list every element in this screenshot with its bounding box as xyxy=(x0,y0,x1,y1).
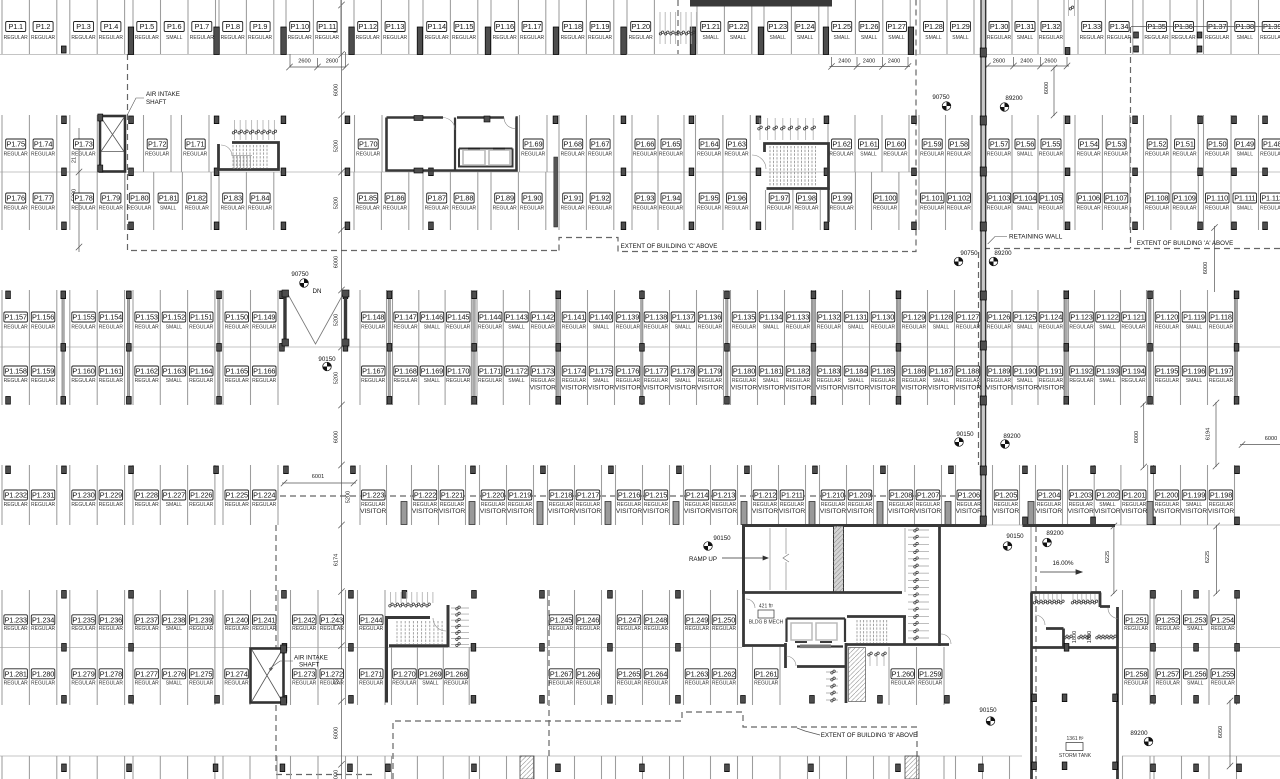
svg-text:89200: 89200 xyxy=(1046,530,1064,537)
svg-text:REGULAR: REGULAR xyxy=(394,325,419,331)
svg-text:REGULAR: REGULAR xyxy=(1121,325,1146,331)
svg-text:REGULAR: REGULAR xyxy=(361,325,386,331)
svg-text:P1.227: P1.227 xyxy=(163,491,185,500)
svg-text:P1.206: P1.206 xyxy=(958,491,980,500)
svg-text:REGULAR: REGULAR xyxy=(520,35,545,41)
svg-text:SMALL: SMALL xyxy=(166,626,183,632)
svg-text:P1.34: P1.34 xyxy=(1110,22,1128,31)
svg-text:P1.175: P1.175 xyxy=(590,367,612,376)
svg-text:SMALL: SMALL xyxy=(166,502,183,508)
svg-text:REGULAR: REGULAR xyxy=(521,152,546,158)
svg-text:P1.245: P1.245 xyxy=(550,615,572,624)
svg-text:VISITOR: VISITOR xyxy=(758,385,784,392)
svg-text:P1.177: P1.177 xyxy=(645,367,667,376)
svg-text:SMALL: SMALL xyxy=(769,35,786,41)
svg-text:P1.249: P1.249 xyxy=(686,615,708,624)
svg-text:P1.22: P1.22 xyxy=(729,22,747,31)
svg-text:P1.235: P1.235 xyxy=(72,615,94,624)
svg-text:REGULAR: REGULAR xyxy=(520,206,545,212)
svg-text:REGULAR: REGULAR xyxy=(145,152,170,158)
svg-text:REGULAR: REGULAR xyxy=(31,35,56,41)
svg-text:P1.94: P1.94 xyxy=(662,194,680,203)
svg-text:P1.104: P1.104 xyxy=(1014,194,1036,203)
svg-text:REGULAR: REGULAR xyxy=(873,206,898,212)
svg-text:REGULAR: REGULAR xyxy=(224,680,249,686)
svg-text:P1.200: P1.200 xyxy=(1156,491,1178,500)
svg-text:2600: 2600 xyxy=(1044,59,1056,65)
svg-text:P1.276: P1.276 xyxy=(163,669,185,678)
svg-text:SMALL: SMALL xyxy=(1017,325,1034,331)
svg-text:P1.237: P1.237 xyxy=(136,615,158,624)
svg-text:REGULAR: REGULAR xyxy=(987,206,1012,212)
svg-text:REGULAR: REGULAR xyxy=(732,325,757,331)
svg-text:P1.30: P1.30 xyxy=(990,22,1008,31)
svg-text:SMALL: SMALL xyxy=(763,378,780,384)
svg-text:SMALL: SMALL xyxy=(1099,325,1116,331)
svg-text:P1.162: P1.162 xyxy=(136,367,158,376)
svg-text:P1.258: P1.258 xyxy=(1125,669,1147,678)
svg-text:SMALL: SMALL xyxy=(925,35,942,41)
svg-text:P1.80: P1.80 xyxy=(130,194,148,203)
svg-text:VISITOR: VISITOR xyxy=(439,508,465,515)
svg-text:P1.246: P1.246 xyxy=(577,615,599,624)
svg-text:AIR INTAKE: AIR INTAKE xyxy=(146,91,180,98)
svg-text:P1.163: P1.163 xyxy=(163,367,185,376)
svg-text:5200: 5200 xyxy=(334,372,340,384)
svg-text:VISITOR: VISITOR xyxy=(575,508,601,515)
svg-text:REGULAR: REGULAR xyxy=(71,35,96,41)
svg-text:REGULAR: REGULAR xyxy=(4,378,29,384)
svg-text:REGULAR: REGULAR xyxy=(947,152,972,158)
svg-text:6174: 6174 xyxy=(334,554,340,566)
svg-text:P1.29: P1.29 xyxy=(951,22,969,31)
svg-text:REGULAR: REGULAR xyxy=(531,378,556,384)
svg-text:VISITOR: VISITOR xyxy=(847,508,873,515)
svg-text:P1.131: P1.131 xyxy=(845,313,867,322)
svg-text:VISITOR: VISITOR xyxy=(816,385,842,392)
svg-text:P1.93: P1.93 xyxy=(636,194,654,203)
svg-text:P1.265: P1.265 xyxy=(618,669,640,678)
svg-text:REGULAR: REGULAR xyxy=(135,378,160,384)
svg-text:P1.11: P1.11 xyxy=(318,22,336,31)
svg-text:VISITOR: VISITOR xyxy=(752,508,778,515)
svg-text:P1.65: P1.65 xyxy=(662,140,680,149)
svg-text:P1.136: P1.136 xyxy=(699,313,721,322)
svg-text:REGULAR: REGULAR xyxy=(616,378,641,384)
svg-text:P1.71: P1.71 xyxy=(186,140,204,149)
svg-text:REGULAR: REGULAR xyxy=(1171,35,1196,41)
svg-text:P1.251: P1.251 xyxy=(1125,615,1147,624)
svg-text:REGULAR: REGULAR xyxy=(31,152,56,158)
svg-text:REGULAR: REGULAR xyxy=(1124,626,1149,632)
svg-text:REGULAR: REGULAR xyxy=(288,35,313,41)
svg-text:P1.127: P1.127 xyxy=(957,313,979,322)
svg-text:P1.19: P1.19 xyxy=(591,22,609,31)
svg-text:REGULAR: REGULAR xyxy=(1205,152,1230,158)
svg-text:REGULAR: REGULAR xyxy=(685,680,710,686)
svg-text:P1.223: P1.223 xyxy=(362,491,384,500)
svg-text:REGULAR: REGULAR xyxy=(561,35,586,41)
svg-text:P1.179: P1.179 xyxy=(699,367,721,376)
svg-text:REGULAR: REGULAR xyxy=(987,35,1012,41)
svg-text:REGULAR: REGULAR xyxy=(4,325,29,331)
svg-text:2600: 2600 xyxy=(298,59,310,65)
svg-text:P1.16: P1.16 xyxy=(496,22,514,31)
svg-text:6000: 6000 xyxy=(1203,262,1209,274)
svg-text:SMALL: SMALL xyxy=(1237,35,1254,41)
svg-text:VISITOR: VISITOR xyxy=(1121,508,1147,515)
svg-text:P1.28: P1.28 xyxy=(924,22,942,31)
svg-text:AIR INTAKE: AIR INTAKE xyxy=(294,655,328,662)
svg-text:REGULAR: REGULAR xyxy=(725,152,750,158)
svg-text:P1.108: P1.108 xyxy=(1146,194,1168,203)
svg-text:P1.204: P1.204 xyxy=(1038,491,1060,500)
svg-text:P1.263: P1.263 xyxy=(686,669,708,678)
svg-text:P1.24: P1.24 xyxy=(796,22,814,31)
svg-text:P1.59: P1.59 xyxy=(923,140,941,149)
svg-text:2400: 2400 xyxy=(1020,59,1032,65)
svg-text:P1.171: P1.171 xyxy=(479,367,501,376)
svg-text:P1.242: P1.242 xyxy=(293,615,315,624)
svg-text:P1.277: P1.277 xyxy=(136,669,158,678)
svg-text:REGULAR: REGULAR xyxy=(1107,35,1132,41)
svg-text:P1.272: P1.272 xyxy=(321,669,343,678)
svg-text:REGULAR: REGULAR xyxy=(252,378,277,384)
svg-text:SMALL: SMALL xyxy=(952,35,969,41)
svg-text:REGULAR: REGULAR xyxy=(359,626,384,632)
svg-text:P1.75: P1.75 xyxy=(7,140,25,149)
svg-text:P1.78: P1.78 xyxy=(74,194,92,203)
svg-text:89200: 89200 xyxy=(1003,433,1021,440)
svg-text:P1.6: P1.6 xyxy=(167,22,182,31)
svg-text:EXTENT OF BUILDING 'C' ABOVE: EXTENT OF BUILDING 'C' ABOVE xyxy=(621,243,718,250)
svg-text:P1.275: P1.275 xyxy=(190,669,212,678)
svg-text:P1.32: P1.32 xyxy=(1042,22,1060,31)
svg-text:REGULAR: REGULAR xyxy=(71,152,96,158)
svg-text:P1.208: P1.208 xyxy=(890,491,912,500)
svg-text:P1.247: P1.247 xyxy=(618,615,640,624)
svg-text:P1.160: P1.160 xyxy=(72,367,94,376)
svg-text:VISITOR: VISITOR xyxy=(956,508,982,515)
svg-text:2400: 2400 xyxy=(838,59,850,65)
svg-text:6225: 6225 xyxy=(1105,551,1111,563)
svg-text:REGULAR: REGULAR xyxy=(1077,206,1102,212)
svg-text:REGULAR: REGULAR xyxy=(4,152,29,158)
svg-text:REGULAR: REGULAR xyxy=(185,206,210,212)
svg-text:REGULAR: REGULAR xyxy=(732,378,757,384)
svg-text:P1.158: P1.158 xyxy=(5,367,27,376)
svg-text:90150: 90150 xyxy=(956,431,974,438)
svg-text:REGULAR: REGULAR xyxy=(292,626,317,632)
svg-text:REGULAR: REGULAR xyxy=(697,206,722,212)
svg-text:P1.202: P1.202 xyxy=(1096,491,1118,500)
svg-text:P1.240: P1.240 xyxy=(226,615,248,624)
svg-text:REGULAR: REGULAR xyxy=(644,626,669,632)
svg-text:REGULAR: REGULAR xyxy=(712,680,737,686)
svg-text:P1.279: P1.279 xyxy=(72,669,94,678)
svg-text:P1.15: P1.15 xyxy=(455,22,473,31)
svg-text:REGULAR: REGULAR xyxy=(135,502,160,508)
svg-text:P1.83: P1.83 xyxy=(224,194,242,203)
svg-text:P1.180: P1.180 xyxy=(733,367,755,376)
svg-text:21: 21 xyxy=(72,157,78,163)
svg-text:P1.188: P1.188 xyxy=(957,367,979,376)
svg-text:P1.225: P1.225 xyxy=(226,491,248,500)
svg-text:REGULAR: REGULAR xyxy=(549,626,574,632)
svg-text:SMALL: SMALL xyxy=(888,35,905,41)
svg-text:REGULAR: REGULAR xyxy=(31,502,56,508)
svg-text:SMALL: SMALL xyxy=(1017,206,1034,212)
svg-text:REGULAR: REGULAR xyxy=(617,680,642,686)
svg-text:P1.52: P1.52 xyxy=(1148,140,1166,149)
svg-text:VISITOR: VISITOR xyxy=(1012,385,1038,392)
svg-text:P1.100: P1.100 xyxy=(874,194,896,203)
svg-text:P1.280: P1.280 xyxy=(32,669,54,678)
svg-text:P1.159: P1.159 xyxy=(32,367,54,376)
svg-text:P1.99: P1.99 xyxy=(833,194,851,203)
svg-text:REGULAR: REGULAR xyxy=(189,325,214,331)
svg-text:REGULAR: REGULAR xyxy=(588,35,613,41)
svg-text:6000: 6000 xyxy=(1265,436,1277,442)
svg-text:VISITOR: VISITOR xyxy=(530,385,556,392)
svg-text:REGULAR: REGULAR xyxy=(478,378,503,384)
svg-text:P1.86: P1.86 xyxy=(386,194,404,203)
svg-text:P1.198: P1.198 xyxy=(1210,491,1232,500)
svg-text:P1.109: P1.109 xyxy=(1173,194,1195,203)
svg-text:P1.222: P1.222 xyxy=(414,491,436,500)
svg-text:P1.269: P1.269 xyxy=(419,669,441,678)
svg-text:P1.224: P1.224 xyxy=(253,491,275,500)
svg-text:REGULAR: REGULAR xyxy=(183,152,208,158)
svg-text:DN: DN xyxy=(313,288,322,295)
svg-text:P1.262: P1.262 xyxy=(713,669,735,678)
svg-text:P1.210: P1.210 xyxy=(822,491,844,500)
svg-text:REGULAR: REGULAR xyxy=(1205,206,1230,212)
svg-text:SMALL: SMALL xyxy=(797,35,814,41)
svg-text:P1.261: P1.261 xyxy=(755,669,777,678)
svg-text:REGULAR: REGULAR xyxy=(252,502,277,508)
svg-text:P1.153: P1.153 xyxy=(136,313,158,322)
svg-text:SMALL: SMALL xyxy=(1186,378,1203,384)
svg-text:REGULAR: REGULAR xyxy=(1121,378,1146,384)
svg-text:REGULAR: REGULAR xyxy=(697,152,722,158)
svg-text:P1.203: P1.203 xyxy=(1070,491,1092,500)
svg-text:VISITOR: VISITOR xyxy=(684,508,710,515)
svg-text:REGULAR: REGULAR xyxy=(383,206,408,212)
svg-text:REGULAR: REGULAR xyxy=(252,626,277,632)
svg-text:6001: 6001 xyxy=(312,474,324,480)
svg-text:P1.77: P1.77 xyxy=(34,194,52,203)
svg-text:REGULAR: REGULAR xyxy=(189,626,214,632)
svg-text:REGULAR: REGULAR xyxy=(31,378,56,384)
svg-text:P1.218: P1.218 xyxy=(550,491,572,500)
svg-text:P1.18: P1.18 xyxy=(564,22,582,31)
svg-text:VISITOR: VISITOR xyxy=(870,385,896,392)
svg-text:REGULAR: REGULAR xyxy=(4,680,29,686)
svg-text:P1.233: P1.233 xyxy=(5,615,27,624)
svg-text:P1.174: P1.174 xyxy=(563,367,585,376)
svg-text:REGULAR: REGULAR xyxy=(1173,152,1198,158)
svg-text:P1.267: P1.267 xyxy=(550,669,572,678)
svg-text:BLDG B MECH: BLDG B MECH xyxy=(749,620,784,626)
svg-text:REGULAR: REGULAR xyxy=(1039,152,1064,158)
svg-text:P1.56: P1.56 xyxy=(1016,140,1034,149)
svg-text:P1.281: P1.281 xyxy=(5,669,27,678)
svg-text:P1.215: P1.215 xyxy=(645,491,667,500)
svg-text:P1.168: P1.168 xyxy=(394,367,416,376)
svg-text:P1.214: P1.214 xyxy=(686,491,708,500)
svg-text:REGULAR: REGULAR xyxy=(31,680,56,686)
svg-text:P1.186: P1.186 xyxy=(903,367,925,376)
svg-text:SMALL: SMALL xyxy=(166,35,183,41)
svg-text:REGULAR: REGULAR xyxy=(698,325,723,331)
svg-text:REGULAR: REGULAR xyxy=(1077,152,1102,158)
svg-text:REGULAR: REGULAR xyxy=(221,35,246,41)
svg-text:P1.182: P1.182 xyxy=(787,367,809,376)
svg-text:REGULAR: REGULAR xyxy=(1039,35,1064,41)
svg-text:REGULAR: REGULAR xyxy=(4,626,29,632)
svg-text:P1.172: P1.172 xyxy=(505,367,527,376)
svg-text:REGULAR: REGULAR xyxy=(871,325,896,331)
svg-text:P1.268: P1.268 xyxy=(445,669,467,678)
svg-text:5000: 5000 xyxy=(334,770,340,779)
svg-text:REGULAR: REGULAR xyxy=(71,325,96,331)
svg-text:REGULAR: REGULAR xyxy=(1260,35,1280,41)
svg-text:VISITOR: VISITOR xyxy=(1068,508,1094,515)
svg-text:SMALL: SMALL xyxy=(1017,152,1034,158)
svg-text:P1.73: P1.73 xyxy=(74,140,92,149)
svg-text:P1.273: P1.273 xyxy=(293,669,315,678)
svg-text:REGULAR: REGULAR xyxy=(444,680,469,686)
svg-text:P1.88: P1.88 xyxy=(455,194,473,203)
svg-text:6000: 6000 xyxy=(334,727,340,739)
svg-text:REGULAR: REGULAR xyxy=(1039,378,1064,384)
svg-text:REGULAR: REGULAR xyxy=(315,35,340,41)
svg-text:P1.187: P1.187 xyxy=(930,367,952,376)
svg-text:P1.62: P1.62 xyxy=(832,140,850,149)
svg-text:REGULAR: REGULAR xyxy=(1145,152,1170,158)
svg-text:P1.98: P1.98 xyxy=(797,194,815,203)
svg-text:P1.95: P1.95 xyxy=(700,194,718,203)
svg-text:REGULAR: REGULAR xyxy=(795,206,820,212)
svg-text:P1.173: P1.173 xyxy=(532,367,554,376)
svg-text:SMALL: SMALL xyxy=(861,35,878,41)
svg-text:P1.102: P1.102 xyxy=(948,194,970,203)
svg-text:P1.252: P1.252 xyxy=(1157,615,1179,624)
svg-text:P1.161: P1.161 xyxy=(100,367,122,376)
svg-text:6000: 6000 xyxy=(334,84,340,96)
svg-text:REGULAR: REGULAR xyxy=(629,35,654,41)
svg-text:P1.271: P1.271 xyxy=(360,669,382,678)
svg-text:SMALL: SMALL xyxy=(424,325,441,331)
svg-text:REGULAR: REGULAR xyxy=(189,378,214,384)
svg-text:P1.143: P1.143 xyxy=(505,313,527,322)
svg-text:P1.132: P1.132 xyxy=(818,313,840,322)
svg-text:VISITOR: VISITOR xyxy=(561,385,587,392)
svg-text:P1.256: P1.256 xyxy=(1184,669,1206,678)
svg-text:P1.253: P1.253 xyxy=(1184,615,1206,624)
svg-text:P1.196: P1.196 xyxy=(1183,367,1205,376)
svg-text:P1.141: P1.141 xyxy=(563,313,585,322)
svg-text:VISITOR: VISITOR xyxy=(843,385,869,392)
svg-text:REGULAR: REGULAR xyxy=(1144,35,1169,41)
svg-text:REGULAR: REGULAR xyxy=(644,378,669,384)
svg-text:EXTENT OF BUILDING 'A' ABOVE: EXTENT OF BUILDING 'A' ABOVE xyxy=(1137,240,1233,247)
svg-text:REGULAR: REGULAR xyxy=(99,502,124,508)
svg-text:STORM TANK: STORM TANK xyxy=(1059,753,1092,759)
svg-text:REGULAR: REGULAR xyxy=(99,35,124,41)
svg-text:6000: 6000 xyxy=(334,431,340,443)
svg-text:REGULAR: REGULAR xyxy=(221,206,246,212)
svg-text:SMALL: SMALL xyxy=(933,325,950,331)
svg-text:EXTENT OF BUILDING 'B' ABOVE: EXTENT OF BUILDING 'B' ABOVE xyxy=(821,732,917,739)
svg-text:P1.107: P1.107 xyxy=(1105,194,1127,203)
svg-text:REGULAR: REGULAR xyxy=(576,680,601,686)
svg-text:P1.201: P1.201 xyxy=(1123,491,1145,500)
svg-text:90150: 90150 xyxy=(1006,533,1024,540)
svg-text:P1.205: P1.205 xyxy=(995,491,1017,500)
svg-text:P1.197: P1.197 xyxy=(1210,367,1232,376)
svg-text:P1.278: P1.278 xyxy=(100,669,122,678)
svg-text:REGULAR: REGULAR xyxy=(786,378,811,384)
svg-text:P1.152: P1.152 xyxy=(163,313,185,322)
svg-text:VISITOR: VISITOR xyxy=(901,385,927,392)
svg-text:P1.90: P1.90 xyxy=(523,194,541,203)
svg-text:P1.12: P1.12 xyxy=(359,22,377,31)
svg-text:P1.140: P1.140 xyxy=(590,313,612,322)
svg-text:REGULAR: REGULAR xyxy=(248,35,273,41)
svg-text:REGULAR: REGULAR xyxy=(987,325,1012,331)
svg-text:P1.25: P1.25 xyxy=(833,22,851,31)
svg-text:P1.220: P1.220 xyxy=(482,491,504,500)
svg-text:P1.33: P1.33 xyxy=(1083,22,1101,31)
svg-text:P1.241: P1.241 xyxy=(253,615,275,624)
svg-text:SMALL: SMALL xyxy=(1237,206,1254,212)
svg-text:VISITOR: VISITOR xyxy=(643,508,669,515)
svg-text:REGULAR: REGULAR xyxy=(754,680,779,686)
svg-text:REGULAR: REGULAR xyxy=(99,325,124,331)
svg-text:P1.248: P1.248 xyxy=(645,615,667,624)
svg-text:REGULAR: REGULAR xyxy=(320,626,345,632)
svg-text:P1.213: P1.213 xyxy=(713,491,735,500)
svg-text:P1.76: P1.76 xyxy=(7,194,25,203)
svg-text:SMALL: SMALL xyxy=(508,378,525,384)
svg-text:REGULAR: REGULAR xyxy=(356,35,381,41)
svg-text:REGULAR: REGULAR xyxy=(320,680,345,686)
svg-text:P1.21: P1.21 xyxy=(702,22,720,31)
svg-text:P1.139: P1.139 xyxy=(617,313,639,322)
svg-text:P1.157: P1.157 xyxy=(5,313,27,322)
svg-text:REGULAR: REGULAR xyxy=(135,680,160,686)
svg-text:P1.243: P1.243 xyxy=(321,615,343,624)
svg-text:P1.101: P1.101 xyxy=(921,194,943,203)
svg-text:P1.150: P1.150 xyxy=(226,313,248,322)
svg-text:P1.236: P1.236 xyxy=(100,615,122,624)
svg-text:P1.17: P1.17 xyxy=(523,22,541,31)
svg-text:REGULAR: REGULAR xyxy=(189,502,214,508)
svg-text:REGULAR: REGULAR xyxy=(588,152,613,158)
svg-text:P1.92: P1.92 xyxy=(591,194,609,203)
svg-text:REGULAR: REGULAR xyxy=(902,378,927,384)
svg-text:P1.14: P1.14 xyxy=(428,22,446,31)
svg-text:REGULAR: REGULAR xyxy=(633,152,658,158)
svg-text:REGULAR: REGULAR xyxy=(902,325,927,331)
svg-text:P1.250: P1.250 xyxy=(713,615,735,624)
svg-text:P1.147: P1.147 xyxy=(394,313,416,322)
svg-text:P1.8: P1.8 xyxy=(225,22,240,31)
svg-text:REGULAR: REGULAR xyxy=(891,680,916,686)
svg-text:REGULAR: REGULAR xyxy=(767,206,792,212)
